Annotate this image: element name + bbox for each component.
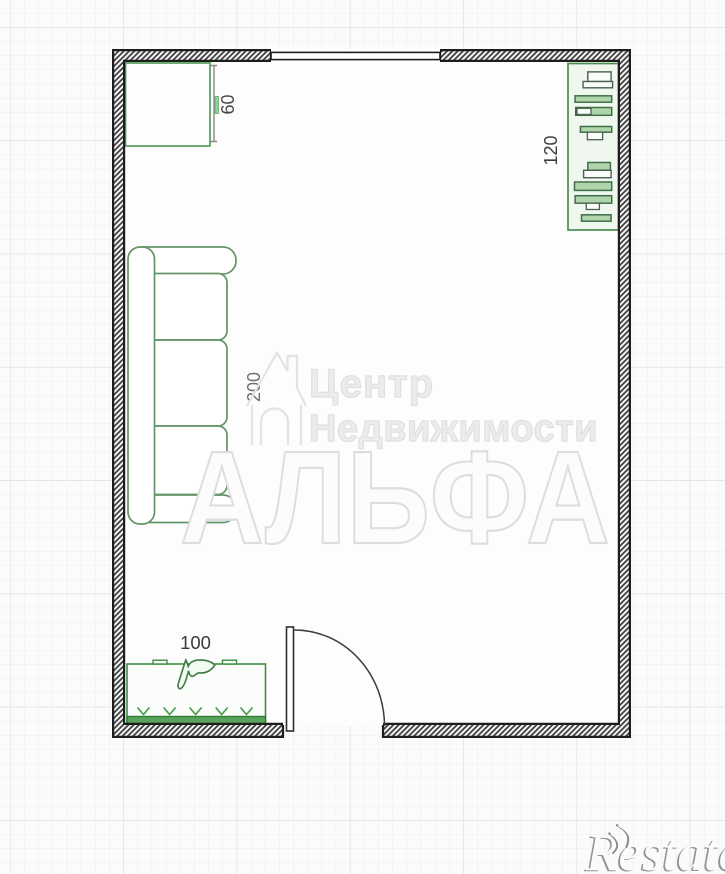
svg-text:Центр: Центр [309,362,434,406]
svg-text:60: 60 [218,94,238,114]
svg-text:Restate: Restate [585,824,725,874]
svg-text:200: 200 [244,372,264,402]
svg-text:АЛЬФА: АЛЬФА [180,424,610,572]
svg-text:120: 120 [541,135,561,165]
svg-text:100: 100 [180,632,211,653]
